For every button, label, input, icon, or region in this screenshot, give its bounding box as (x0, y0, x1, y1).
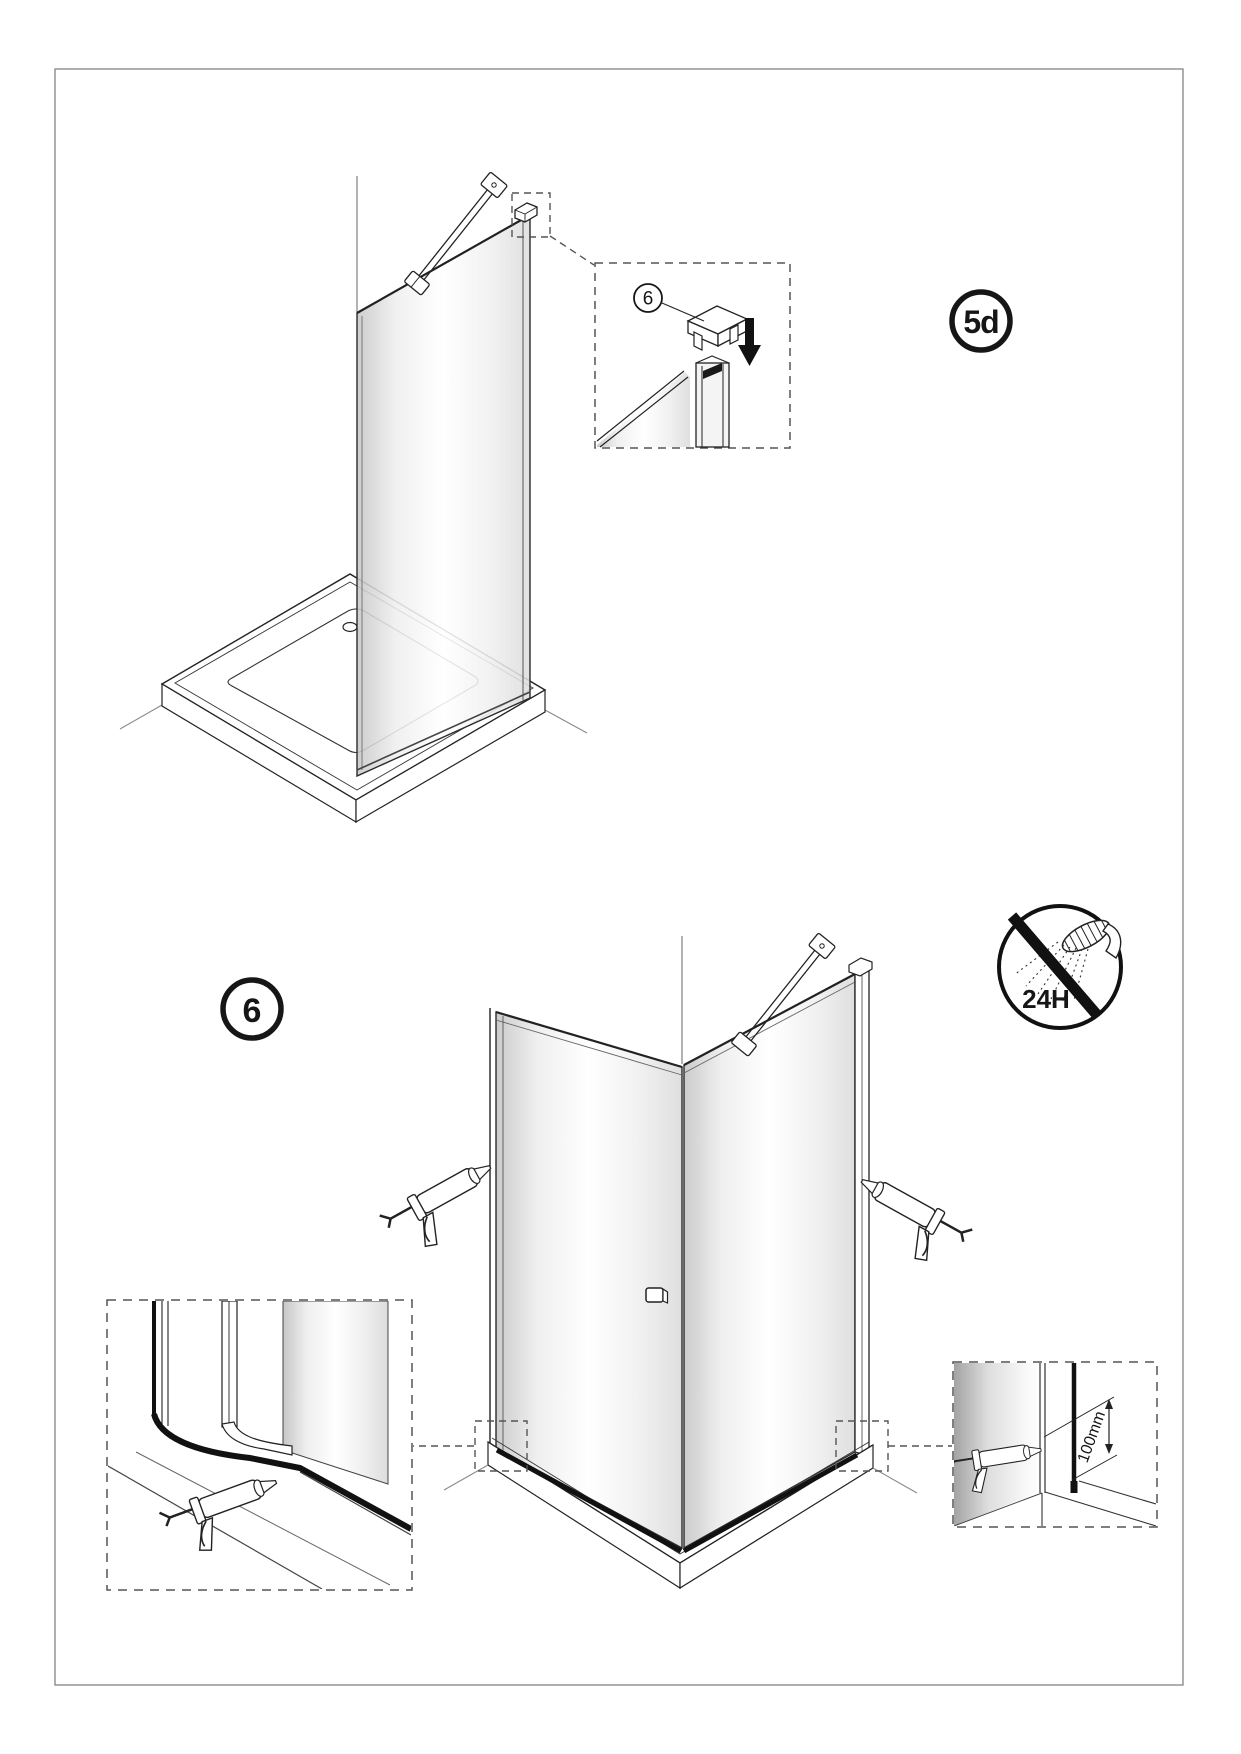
part-6-callout-number: 6 (643, 289, 654, 310)
step-6-label: 6 (243, 992, 262, 1030)
24h-wait-label: 24H (1022, 984, 1070, 1014)
inset-border (595, 263, 790, 448)
step-5d-badge: 5d (952, 292, 1010, 350)
step-5d-illustration (120, 172, 594, 822)
step-6-badge: 6 (223, 980, 281, 1038)
glass-panel (357, 203, 537, 776)
support-bar-wall-bracket (808, 933, 835, 959)
door-handle (646, 1288, 668, 1303)
panel-top-cap (515, 203, 537, 222)
bottom-left-seal-inset (107, 1300, 412, 1590)
drain-hole (343, 623, 357, 632)
instruction-page: 6 5d 6 (0, 0, 1241, 1754)
step-6-illustration (379, 933, 974, 1588)
bottom-right-seal-inset: 100mm (947, 1362, 1157, 1527)
instruction-artwork: 6 5d 6 (0, 0, 1241, 1754)
cap-detail-inset: 6 (595, 263, 790, 448)
no-shower-24h-icon: 24H (999, 906, 1121, 1028)
callout-leader-line (550, 236, 594, 265)
step-5d-label: 5d (963, 304, 998, 340)
